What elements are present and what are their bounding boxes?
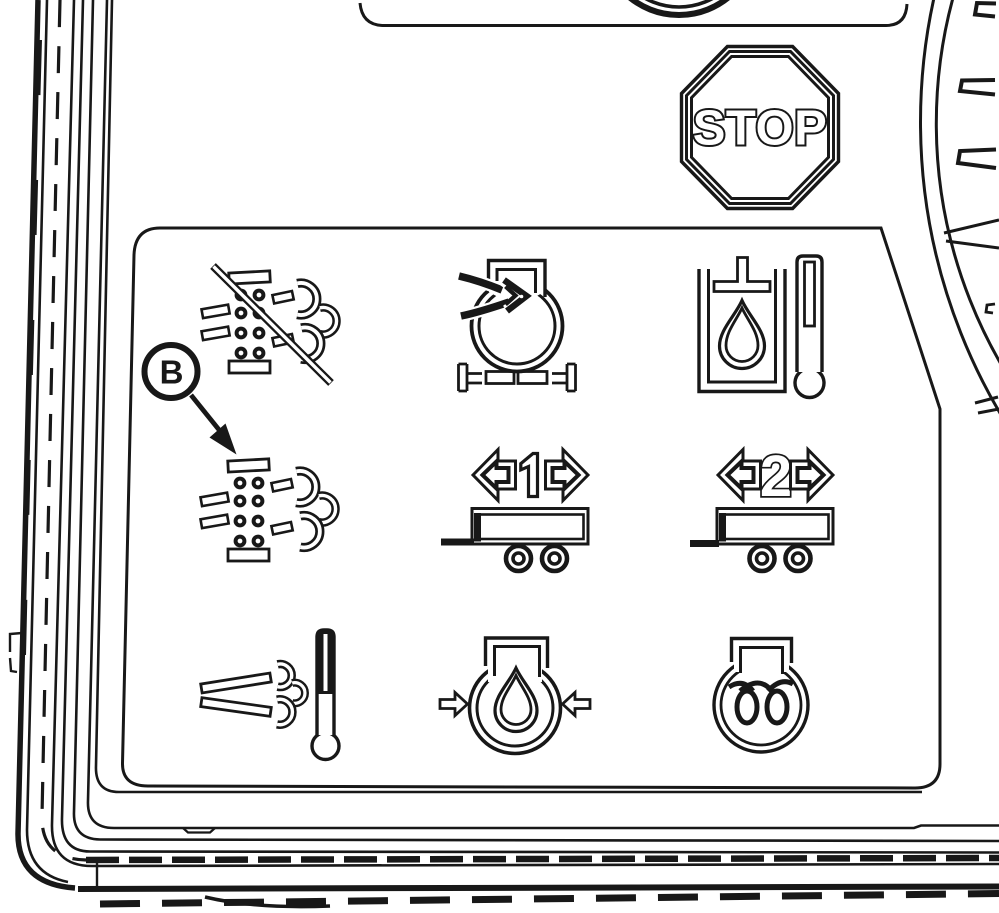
svg-text:2: 2 — [760, 444, 792, 509]
svg-text:STOP: STOP — [693, 102, 828, 156]
svg-text:B: B — [160, 354, 184, 391]
